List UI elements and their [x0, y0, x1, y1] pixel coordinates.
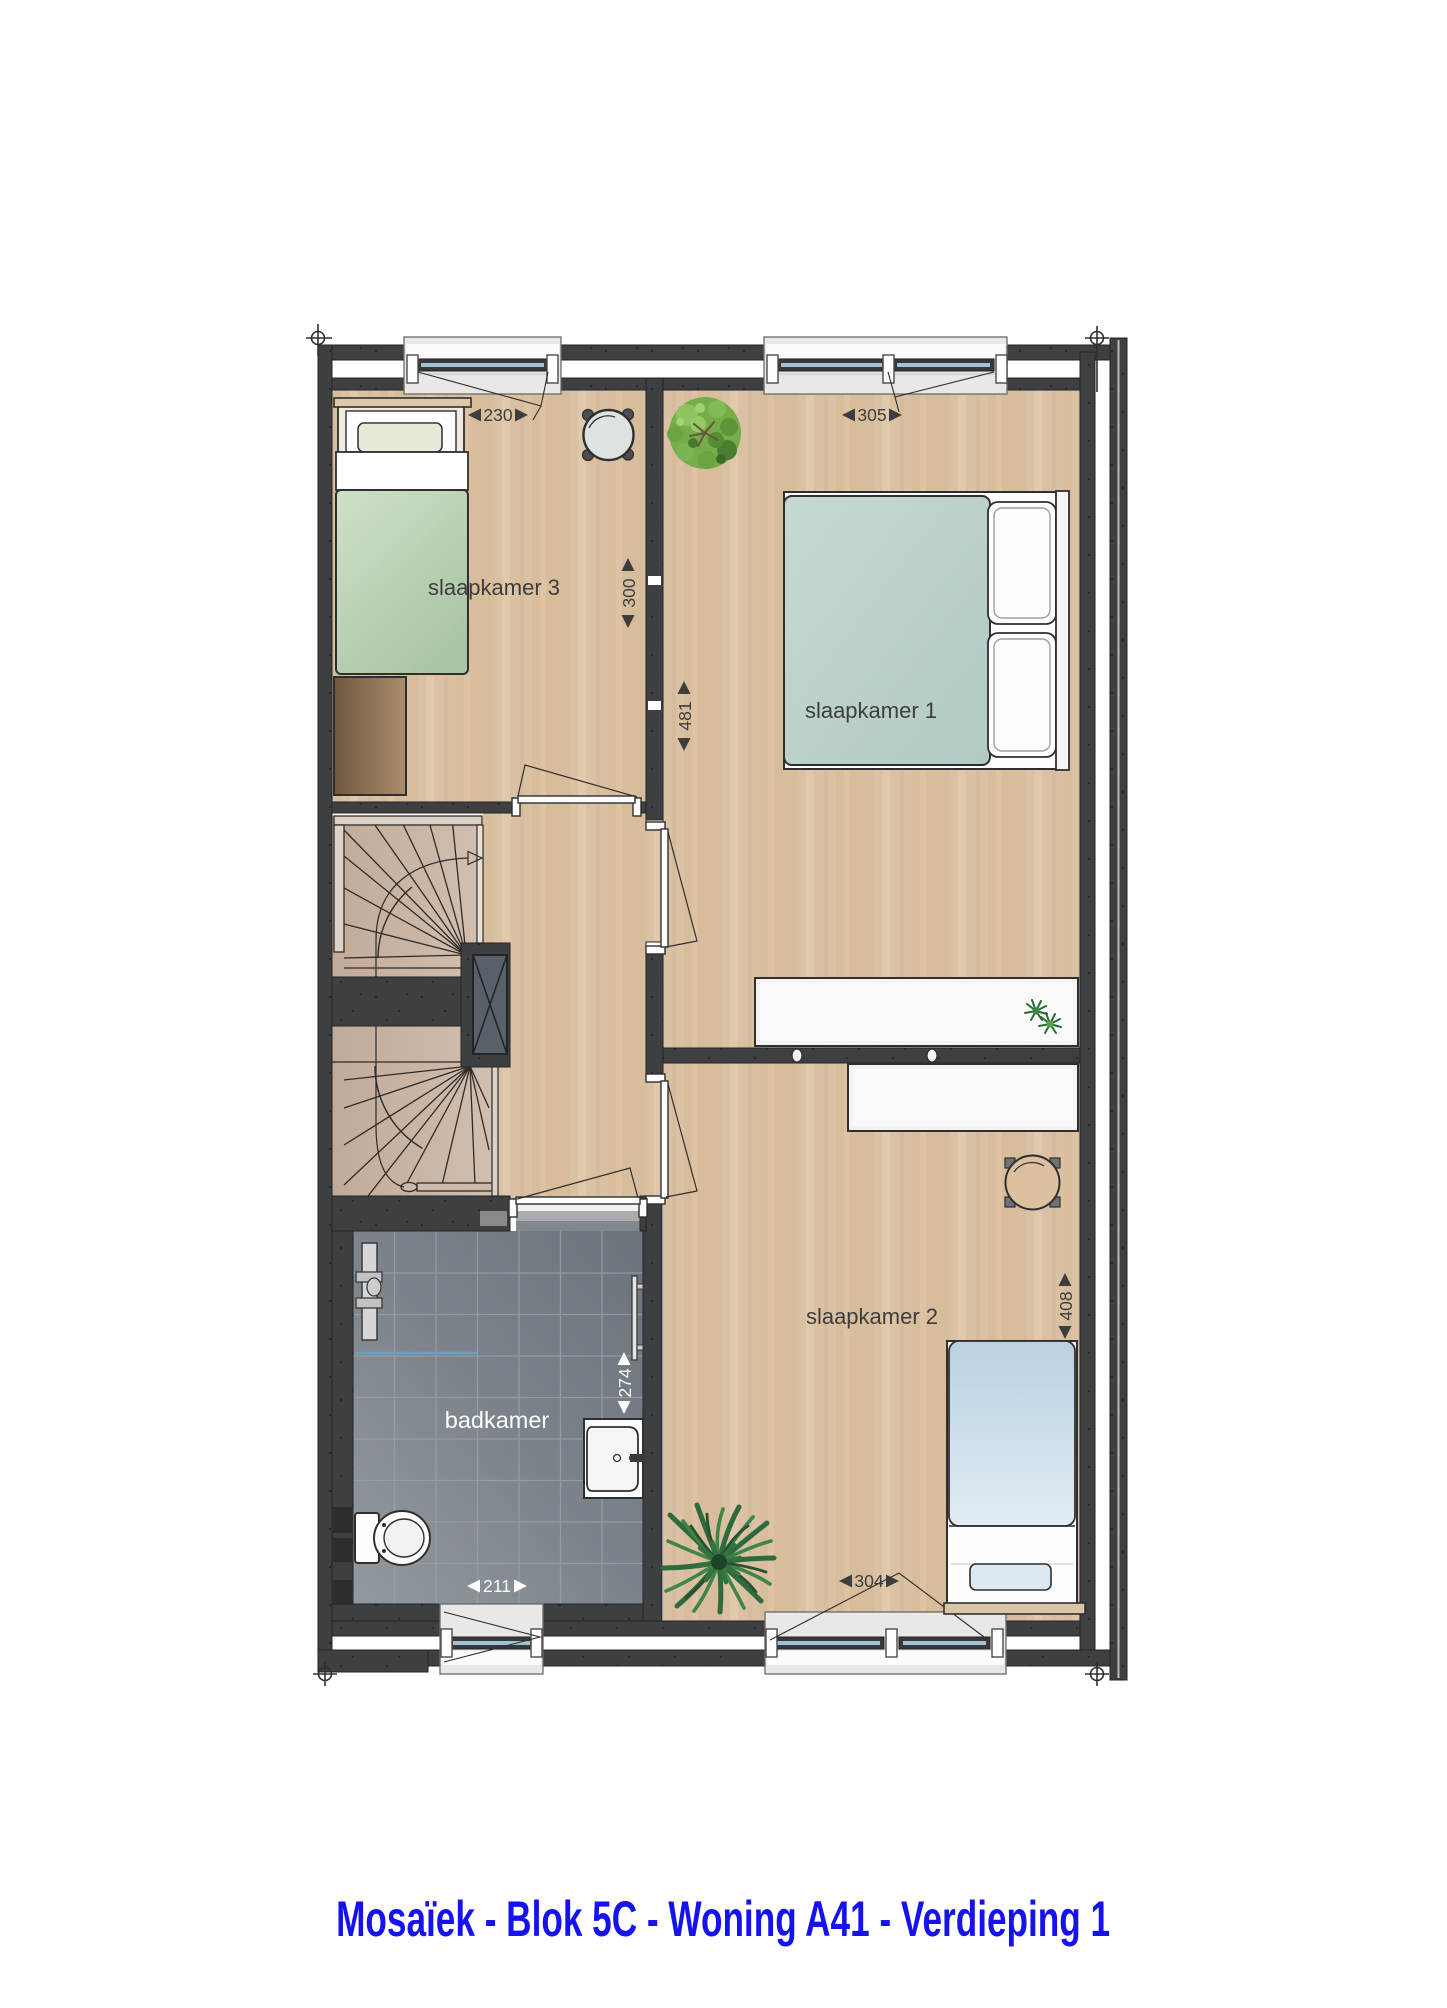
svg-text:211: 211: [483, 1576, 511, 1596]
svg-text:badkamer: badkamer: [445, 1407, 550, 1433]
svg-text:305: 305: [857, 405, 886, 425]
svg-text:304: 304: [854, 1571, 883, 1591]
svg-text:300: 300: [619, 578, 639, 607]
svg-text:slaapkamer 3: slaapkamer 3: [428, 575, 560, 600]
svg-text:slaapkamer 2: slaapkamer 2: [806, 1304, 938, 1329]
svg-text:230: 230: [483, 405, 512, 425]
svg-text:274: 274: [615, 1368, 635, 1397]
svg-text:408: 408: [1056, 1291, 1076, 1320]
svg-text:481: 481: [675, 701, 695, 730]
svg-text:slaapkamer 1: slaapkamer 1: [805, 698, 937, 723]
